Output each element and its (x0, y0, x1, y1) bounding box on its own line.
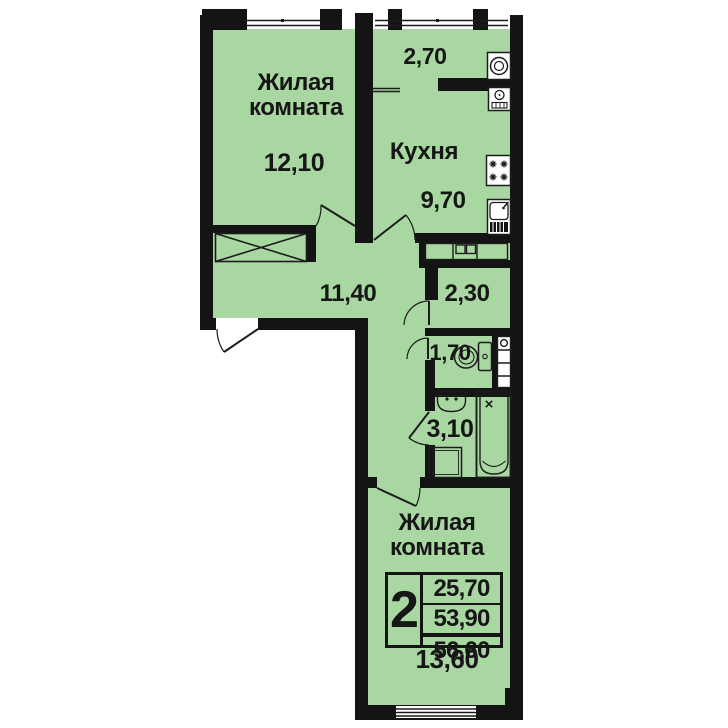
rooms-count-cell: 2 (388, 575, 423, 645)
room-label-kitchen: Кухня (384, 139, 464, 164)
room-area-hall: 11,40 (298, 281, 398, 306)
door-arc-icon (217, 205, 429, 506)
rooms-count: 2 (390, 580, 418, 640)
room-label-living-bottom: Жилая комната (367, 510, 507, 560)
room-label-living-top: Жилая комната (226, 70, 366, 120)
stove-icon (487, 156, 511, 186)
wardrobe-x-icon (216, 234, 307, 262)
water-heater-icon (489, 88, 511, 111)
appliance-square-icon (430, 448, 462, 478)
floor-area-value: 53,90 (423, 603, 500, 633)
room-area-living-top: 12,10 (244, 150, 344, 176)
room-area-wc: 1,70 (412, 341, 488, 364)
areas-column: 25,70 53,90 56,60 (423, 575, 500, 645)
room-area-bathroom: 3,10 (410, 416, 490, 442)
room-area-kitchen: 9,70 (403, 188, 483, 213)
kitchen-sink-icon (488, 200, 511, 235)
washbasin-icon (438, 392, 466, 412)
washing-machine-icon (488, 53, 511, 80)
floor-plan-canvas: Жилая комната 12,10 2,70 Кухня 9,70 11,4… (0, 0, 728, 728)
sill-line (373, 89, 400, 92)
apartment-summary-table: 2 25,70 53,90 56,60 (385, 572, 503, 648)
cabinet-row-icon (426, 244, 508, 260)
room-area-inner-hall: 2,30 (427, 281, 507, 306)
total-area-value: 56,60 (423, 633, 500, 665)
living-area-value: 25,70 (423, 575, 500, 603)
room-area-loggia: 2,70 (385, 44, 465, 68)
vent-shaft-icon (498, 337, 511, 388)
